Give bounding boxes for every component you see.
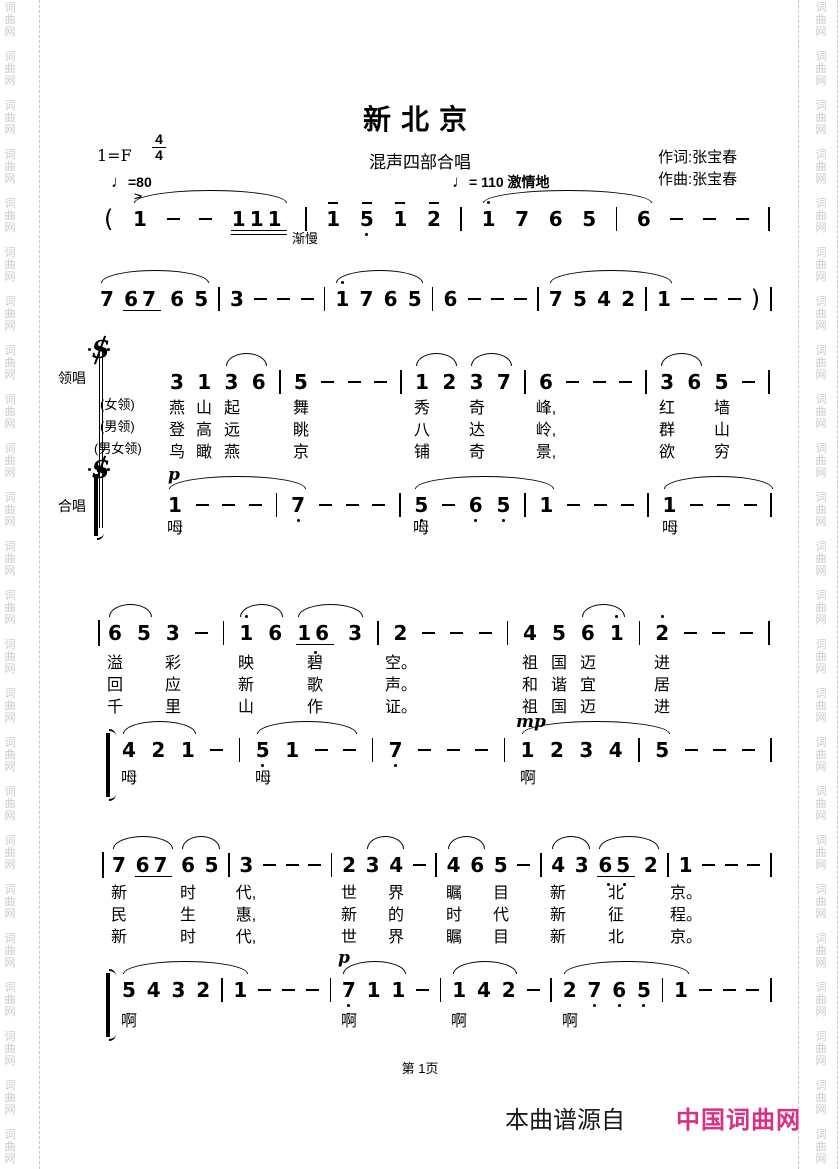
slur-arc bbox=[453, 961, 517, 974]
watermark-group: 词曲网 bbox=[2, 198, 18, 234]
duration-dash bbox=[254, 298, 267, 300]
duration-dash bbox=[447, 749, 460, 751]
barline bbox=[770, 853, 772, 877]
time-numerator: 4 bbox=[151, 132, 167, 147]
time-signature: 4 4 bbox=[151, 132, 167, 163]
lyric-syllable: 呣 bbox=[413, 514, 429, 538]
note: 1 bbox=[679, 852, 693, 878]
lyric-syllable: 代, bbox=[236, 923, 256, 947]
barline bbox=[537, 287, 539, 311]
lyric-syllable: 舞 bbox=[293, 394, 309, 418]
voice-part-label: (男女领) bbox=[94, 438, 142, 457]
barline bbox=[221, 978, 223, 1002]
footer-site-name: 中国词曲网 bbox=[676, 1100, 801, 1135]
duration-dash bbox=[450, 632, 463, 634]
note: 4 bbox=[389, 852, 403, 878]
duration-dash bbox=[704, 298, 717, 300]
note: 67 bbox=[124, 286, 160, 312]
duration-dash bbox=[681, 298, 694, 300]
note: 3 bbox=[366, 852, 380, 878]
note: 1 bbox=[674, 977, 688, 1003]
note: 1 bbox=[415, 369, 429, 395]
note: 1 bbox=[391, 977, 405, 1003]
watermark-group: 词曲网 bbox=[813, 688, 829, 724]
lyric-syllable: 眺 bbox=[293, 416, 309, 440]
duration-dash bbox=[222, 504, 235, 506]
duration-dash bbox=[263, 864, 276, 866]
note: 1 bbox=[133, 206, 147, 232]
note: 6 bbox=[539, 369, 553, 395]
duration-dash bbox=[670, 218, 683, 220]
note: 2 bbox=[342, 852, 356, 878]
watermark-group: 词曲网 bbox=[813, 982, 829, 1018]
barline bbox=[768, 207, 770, 231]
barline bbox=[550, 978, 552, 1002]
lyric-syllable: 空。 bbox=[385, 649, 417, 673]
lyric-row: 新时代,世界瞩目新北京。 bbox=[112, 923, 772, 943]
slur-arc bbox=[664, 476, 773, 489]
lyric-row: 呣呣啊 bbox=[122, 764, 772, 784]
duration-dash bbox=[442, 504, 455, 506]
note: 5 bbox=[205, 852, 219, 878]
watermark-group: 词曲网 bbox=[2, 345, 18, 381]
lyric-syllable: 穷 bbox=[714, 438, 730, 462]
lyric-syllable: 秀 bbox=[414, 394, 430, 418]
duration-dash bbox=[713, 749, 726, 751]
watermark-group: 词曲网 bbox=[813, 394, 829, 430]
note: 3 bbox=[230, 286, 244, 312]
watermark-group: 词曲网 bbox=[813, 786, 829, 822]
note: 1 bbox=[367, 977, 381, 1003]
footer-page-number: 第 1页 bbox=[0, 1058, 840, 1077]
note: 2 bbox=[196, 977, 210, 1003]
slur-arc bbox=[336, 270, 423, 283]
lyric-syllable: 啊 bbox=[451, 1007, 467, 1031]
note: 6 bbox=[108, 620, 122, 646]
tempo-marking-left: ♩=80 bbox=[111, 172, 152, 192]
watermark-group: 词曲网 bbox=[2, 835, 18, 871]
note: 5 bbox=[122, 977, 136, 1003]
lyric-syllable: 的 bbox=[388, 901, 404, 925]
duration-dash bbox=[702, 864, 715, 866]
duration-dash bbox=[372, 504, 385, 506]
duration-dash bbox=[321, 381, 334, 383]
duration-dash bbox=[315, 749, 328, 751]
barline bbox=[223, 621, 225, 645]
voice-part-label: (女领) bbox=[100, 394, 135, 413]
watermark-group: 词曲网 bbox=[2, 51, 18, 87]
watermark-group: 词曲网 bbox=[2, 1129, 18, 1165]
note: 6 bbox=[470, 852, 484, 878]
note: 1 bbox=[452, 977, 466, 1003]
watermark-group: 词曲网 bbox=[813, 492, 829, 528]
note: 1 bbox=[610, 620, 624, 646]
note: 1 bbox=[521, 737, 535, 763]
duration-dash bbox=[195, 632, 208, 634]
duration-dash bbox=[742, 381, 755, 383]
note: 6 bbox=[612, 977, 626, 1003]
lyric-row: 呣呣呣 bbox=[168, 514, 772, 534]
lyric-syllable: 呣 bbox=[662, 514, 678, 538]
duration-dash bbox=[319, 504, 332, 506]
intro-paren: ( bbox=[104, 206, 113, 232]
lyric-syllable: 起 bbox=[224, 394, 240, 418]
note: 7 bbox=[112, 852, 126, 878]
lyric-syllable: 新 bbox=[238, 671, 254, 695]
note: 7 bbox=[497, 369, 511, 395]
lyric-row: 民生惠,新的时代新征程。 bbox=[112, 901, 772, 921]
lyric-syllable: 呣 bbox=[255, 764, 271, 788]
barline bbox=[279, 370, 281, 394]
note: 7 bbox=[389, 737, 403, 763]
lyric-syllable: 峰, bbox=[536, 394, 556, 418]
barline bbox=[770, 287, 772, 311]
duration-dash bbox=[343, 749, 356, 751]
note: 2 bbox=[394, 620, 408, 646]
duration-dash bbox=[566, 381, 579, 383]
lyric-syllable: 溢 bbox=[107, 649, 123, 673]
note: 4 bbox=[147, 977, 161, 1003]
duration-dash bbox=[286, 864, 299, 866]
lyric-syllable: 作 bbox=[307, 693, 323, 717]
barline bbox=[770, 738, 772, 762]
lyric-syllable: 京。 bbox=[670, 923, 702, 947]
lyric-syllable: 山 bbox=[238, 693, 254, 717]
duration-dash bbox=[593, 381, 606, 383]
note: 3 bbox=[575, 852, 589, 878]
duration-dash bbox=[699, 989, 712, 991]
note: 6 bbox=[687, 369, 701, 395]
barline bbox=[770, 978, 772, 1002]
note: 5 bbox=[655, 737, 669, 763]
music-system-1: (1111151217656 bbox=[104, 206, 770, 232]
barline bbox=[638, 738, 640, 762]
lyric-syllable: 啊 bbox=[341, 1007, 357, 1031]
duration-dash bbox=[277, 298, 290, 300]
dynamic-marking: p bbox=[168, 465, 180, 485]
watermark-right: 词曲网词曲网词曲网词曲网词曲网词曲网词曲网词曲网词曲网词曲网词曲网词曲网词曲网词… bbox=[813, 2, 829, 1169]
note: 7 bbox=[587, 977, 601, 1003]
lyric-syllable: 惠, bbox=[236, 901, 256, 925]
note: 4 bbox=[122, 737, 136, 763]
watermark-group: 词曲网 bbox=[2, 394, 18, 430]
note: 65 bbox=[598, 852, 634, 878]
lyric-syllable: 新 bbox=[550, 923, 566, 947]
lyric-syllable: 新 bbox=[550, 901, 566, 925]
slur-arc bbox=[101, 270, 209, 283]
barline bbox=[504, 738, 506, 762]
duration-dash bbox=[167, 218, 180, 220]
note: 3 bbox=[172, 977, 186, 1003]
lyric-syllable: 生 bbox=[180, 901, 196, 925]
lyric-row: (男领)登高远眺八达岭,群山 bbox=[170, 416, 770, 436]
lyric-syllable: 国 bbox=[551, 693, 567, 717]
barline bbox=[432, 287, 434, 311]
note: 1 bbox=[482, 206, 496, 232]
slur-arc bbox=[448, 836, 485, 849]
note: 3 bbox=[166, 620, 180, 646]
lyric-syllable: 墙 bbox=[714, 394, 730, 418]
lyric-syllable: 铺 bbox=[414, 438, 430, 462]
slur-arc bbox=[240, 604, 283, 617]
note: 5 bbox=[256, 737, 270, 763]
lyric-row: (男女领)鸟瞰燕京铺奇景,欲穷 bbox=[170, 438, 770, 458]
note: 1 bbox=[393, 206, 407, 232]
watermark-group: 词曲网 bbox=[2, 639, 18, 675]
lyric-syllable: 瞩 bbox=[446, 879, 462, 903]
accent-mark: > bbox=[134, 190, 142, 203]
note: 5 bbox=[715, 369, 729, 395]
slur-arc bbox=[582, 604, 625, 617]
watermark-group: 词曲网 bbox=[2, 884, 18, 920]
lyric-syllable: 山 bbox=[196, 394, 212, 418]
lyric-syllable: 瞰 bbox=[196, 438, 212, 462]
watermark-group: 词曲网 bbox=[2, 737, 18, 773]
watermark-group: 词曲网 bbox=[813, 933, 829, 969]
lyric-syllable: 声。 bbox=[385, 671, 417, 695]
note: 5 bbox=[582, 206, 596, 232]
lyric-syllable: 目 bbox=[493, 923, 509, 947]
note: 2 bbox=[550, 737, 564, 763]
watermark-group: 词曲网 bbox=[2, 688, 18, 724]
duration-dash bbox=[210, 749, 223, 751]
watermark-group: 词曲网 bbox=[813, 1129, 829, 1165]
lyric-syllable: 民 bbox=[111, 901, 127, 925]
slur-arc bbox=[416, 353, 457, 366]
lyric-syllable: 时 bbox=[180, 923, 196, 947]
note: 7 bbox=[342, 977, 356, 1003]
lyric-syllable: 代, bbox=[236, 879, 256, 903]
watermark-group: 词曲网 bbox=[813, 835, 829, 871]
music-system-5: 65316163245612 bbox=[108, 620, 770, 646]
watermark-left: 词曲网词曲网词曲网词曲网词曲网词曲网词曲网词曲网词曲网词曲网词曲网词曲网词曲网词… bbox=[2, 2, 18, 1169]
barline bbox=[540, 853, 542, 877]
slur-arc bbox=[552, 836, 590, 849]
lyric-syllable: 代 bbox=[493, 901, 509, 925]
note: 2 bbox=[442, 369, 456, 395]
lead-vocal-label: 领唱 bbox=[58, 368, 86, 388]
note: 6 bbox=[384, 286, 398, 312]
intro-paren: ) bbox=[751, 286, 760, 312]
slur-arc bbox=[415, 476, 554, 489]
lyric-syllable: 祖 bbox=[522, 649, 538, 673]
slur-arc bbox=[226, 353, 267, 366]
note: 6 bbox=[444, 286, 458, 312]
note: 4 bbox=[447, 852, 461, 878]
lyric-syllable: 新 bbox=[550, 879, 566, 903]
note: 2 bbox=[644, 852, 658, 878]
music-system-3: 3136512376365 bbox=[170, 369, 770, 395]
barline bbox=[460, 207, 462, 231]
music-system-6: 42151712345 bbox=[122, 737, 772, 763]
lyric-row: 溢彩映碧空。祖国迈进 bbox=[108, 649, 770, 669]
barline bbox=[667, 853, 669, 877]
lyric-syllable: 世 bbox=[341, 923, 357, 947]
lyric-syllable: 应 bbox=[165, 671, 181, 695]
lyricist-credit: 作词:张宝春 bbox=[658, 146, 737, 167]
lyric-syllable: 碧 bbox=[307, 649, 323, 673]
lyric-syllable: 宜 bbox=[580, 671, 596, 695]
slur-arc bbox=[113, 836, 173, 849]
watermark-group: 词曲网 bbox=[813, 296, 829, 332]
watermark-group: 词曲网 bbox=[2, 1080, 18, 1116]
watermark-group: 词曲网 bbox=[2, 786, 18, 822]
time-denominator: 4 bbox=[151, 148, 167, 163]
lyric-syllable: 呣 bbox=[121, 764, 137, 788]
lyric-syllable: 登 bbox=[169, 416, 185, 440]
lyric-syllable: 岭, bbox=[536, 416, 556, 440]
note: 5 bbox=[494, 852, 508, 878]
duration-dash bbox=[621, 504, 634, 506]
lyric-syllable: 界 bbox=[388, 879, 404, 903]
note: 4 bbox=[597, 286, 611, 312]
barline bbox=[331, 853, 333, 877]
lyric-syllable: 欲 bbox=[659, 438, 675, 462]
lyric-syllable: 啊 bbox=[121, 1007, 137, 1031]
duration-dash bbox=[514, 298, 527, 300]
duration-dash bbox=[418, 749, 431, 751]
lyric-row: 千里山作证。祖国迈进 bbox=[108, 693, 770, 713]
duration-dash bbox=[690, 504, 703, 506]
watermark-group: 词曲网 bbox=[2, 247, 18, 283]
duration-dash bbox=[258, 989, 271, 991]
watermark-group: 词曲网 bbox=[813, 443, 829, 479]
dynamic-marking: p bbox=[338, 948, 350, 968]
lyric-syllable: 千 bbox=[107, 693, 123, 717]
note: 16 bbox=[297, 620, 333, 646]
duration-dash bbox=[723, 989, 736, 991]
barline bbox=[228, 853, 230, 877]
watermark-group: 词曲网 bbox=[813, 590, 829, 626]
watermark-group: 词曲网 bbox=[2, 2, 18, 38]
lyric-row: 新时代,世界瞩目新北京。 bbox=[112, 879, 772, 899]
lyric-row: (女领)燕山起舞秀奇峰,红墙 bbox=[170, 394, 770, 414]
note: 2 bbox=[151, 737, 165, 763]
note: 5 bbox=[573, 286, 587, 312]
note: 1 bbox=[285, 737, 299, 763]
duration-dash bbox=[348, 381, 361, 383]
watermark-group: 词曲网 bbox=[2, 492, 18, 528]
lyric-syllable: 时 bbox=[446, 901, 462, 925]
note: 1 bbox=[239, 620, 253, 646]
watermark-group: 词曲网 bbox=[813, 345, 829, 381]
duration-dash bbox=[413, 864, 426, 866]
barline bbox=[400, 370, 402, 394]
note: 5 bbox=[637, 977, 651, 1003]
note: 111 bbox=[232, 206, 286, 232]
lyric-syllable: 啊 bbox=[520, 764, 536, 788]
slur-arc bbox=[367, 836, 404, 849]
barline bbox=[768, 621, 770, 645]
lyric-syllable: 新 bbox=[111, 923, 127, 947]
slur-arc bbox=[550, 270, 672, 283]
duration-dash bbox=[346, 504, 359, 506]
lyric-syllable: 京 bbox=[293, 438, 309, 462]
watermark-group: 词曲网 bbox=[813, 1080, 829, 1116]
lyric-syllable: 映 bbox=[238, 649, 254, 673]
watermark-group: 词曲网 bbox=[2, 443, 18, 479]
lyric-syllable: 世 bbox=[341, 879, 357, 903]
watermark-group: 词曲网 bbox=[813, 198, 829, 234]
lyric-syllable: 燕 bbox=[224, 438, 240, 462]
duration-dash bbox=[301, 298, 314, 300]
duration-dash bbox=[527, 989, 540, 991]
note: 7 bbox=[515, 206, 529, 232]
watermark-group: 词曲网 bbox=[813, 51, 829, 87]
watermark-group: 词曲网 bbox=[813, 737, 829, 773]
lyric-syllable: 京。 bbox=[670, 879, 702, 903]
duration-dash bbox=[475, 749, 488, 751]
duration-dash bbox=[744, 504, 757, 506]
lyric-syllable: 国 bbox=[551, 649, 567, 673]
barline bbox=[218, 287, 220, 311]
barline bbox=[662, 978, 664, 1002]
note: 6 bbox=[252, 369, 266, 395]
note: 5 bbox=[408, 286, 422, 312]
system-start-barline bbox=[102, 852, 104, 878]
duration-dash bbox=[740, 632, 753, 634]
duration-dash bbox=[619, 381, 632, 383]
barline bbox=[440, 978, 442, 1002]
slur-arc bbox=[123, 961, 248, 974]
note: 5 bbox=[552, 620, 566, 646]
duration-dash bbox=[374, 381, 387, 383]
duration-dash bbox=[196, 504, 209, 506]
duration-dash bbox=[517, 864, 530, 866]
duration-dash bbox=[685, 749, 698, 751]
lyric-syllable: 里 bbox=[165, 693, 181, 717]
barline bbox=[645, 370, 647, 394]
slur-arc bbox=[109, 604, 152, 617]
note: 5 bbox=[360, 206, 374, 232]
slur-arc bbox=[182, 836, 220, 849]
barline bbox=[239, 738, 241, 762]
quarter-note-icon: ♩ bbox=[111, 172, 128, 191]
lyric-syllable: 和 bbox=[522, 671, 538, 695]
note: 1 bbox=[326, 206, 340, 232]
note: 3 bbox=[579, 737, 593, 763]
duration-dash bbox=[567, 504, 580, 506]
barline bbox=[372, 738, 374, 762]
lyric-syllable: 回 bbox=[107, 671, 123, 695]
dynamic-marking: mp bbox=[516, 712, 546, 732]
lyric-syllable: 八 bbox=[414, 416, 430, 440]
watermark-group: 词曲网 bbox=[2, 590, 18, 626]
lyric-row: 回应新歌声。和谐宜居 bbox=[108, 671, 770, 691]
duration-dash bbox=[725, 864, 738, 866]
duration-dash bbox=[468, 298, 481, 300]
duration-dash bbox=[416, 989, 429, 991]
watermark-group: 词曲网 bbox=[2, 541, 18, 577]
duration-dash bbox=[479, 632, 492, 634]
watermark-group: 词曲网 bbox=[813, 884, 829, 920]
slur-arc bbox=[564, 961, 689, 974]
lyric-syllable: 北 bbox=[608, 879, 624, 903]
slur-arc bbox=[599, 836, 659, 849]
slur-arc bbox=[298, 604, 363, 617]
note: 7 bbox=[100, 286, 114, 312]
barline bbox=[645, 287, 647, 311]
left-dashed-rail bbox=[39, 0, 40, 1169]
duration-dash bbox=[684, 632, 697, 634]
lyric-syllable: 奇 bbox=[469, 394, 485, 418]
lyric-syllable: 景, bbox=[536, 438, 556, 462]
note: 7 bbox=[549, 286, 563, 312]
note: 3 bbox=[225, 369, 239, 395]
voice-part-label: (男领) bbox=[100, 416, 135, 435]
music-system-7: 767653234465436521 bbox=[112, 852, 772, 878]
note: 2 bbox=[655, 620, 669, 646]
